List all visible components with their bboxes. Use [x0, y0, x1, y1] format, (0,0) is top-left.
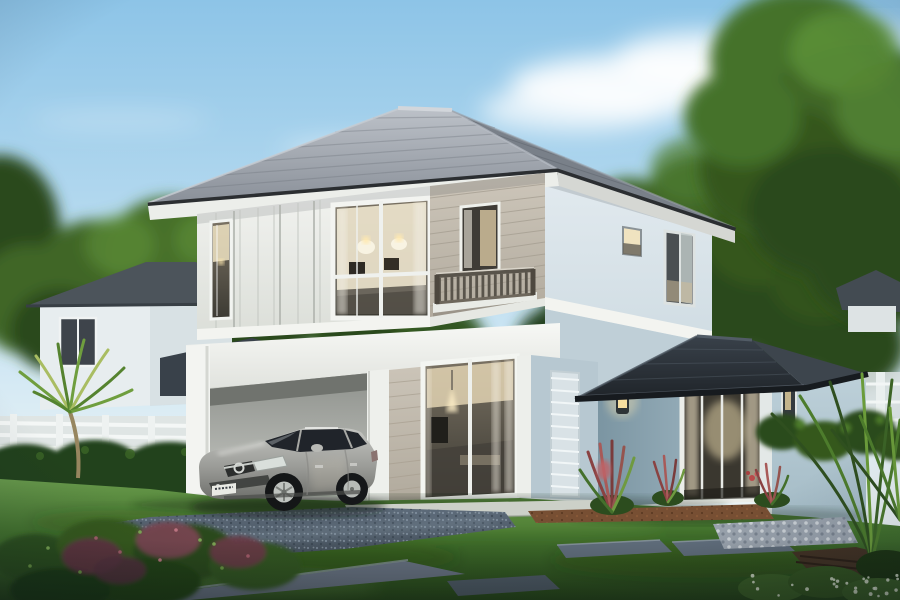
house-scene: Modern two-storey detached house with op…: [0, 0, 900, 600]
vignette: [0, 0, 900, 600]
bottom-shade: [0, 540, 900, 600]
photo-render: Modern two-storey detached house with op…: [0, 0, 900, 600]
